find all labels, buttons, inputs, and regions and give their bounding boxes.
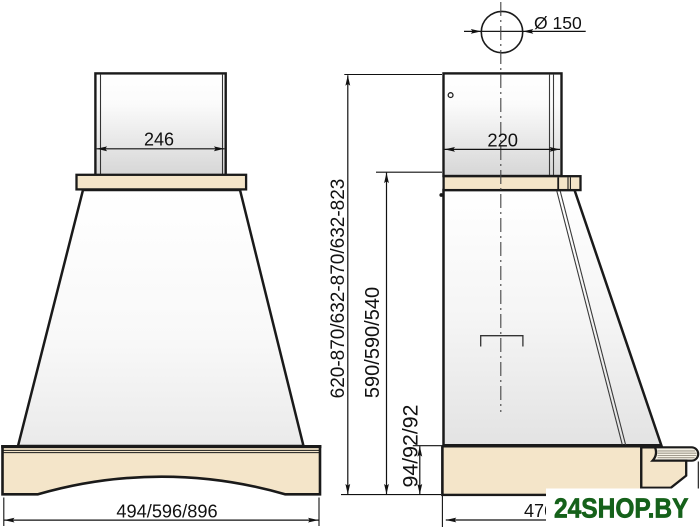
svg-text:494/596/896: 494/596/896 (116, 501, 217, 521)
svg-text:220: 220 (487, 129, 518, 150)
svg-text:Ø 150: Ø 150 (534, 13, 582, 33)
svg-text:246: 246 (144, 130, 174, 150)
svg-text:24SHOP.BY: 24SHOP.BY (554, 493, 689, 524)
svg-text:620-870/632-870/632-823: 620-870/632-870/632-823 (328, 179, 349, 399)
svg-text:94/92/92: 94/92/92 (398, 405, 422, 488)
svg-text:590/590/540: 590/590/540 (362, 287, 384, 398)
